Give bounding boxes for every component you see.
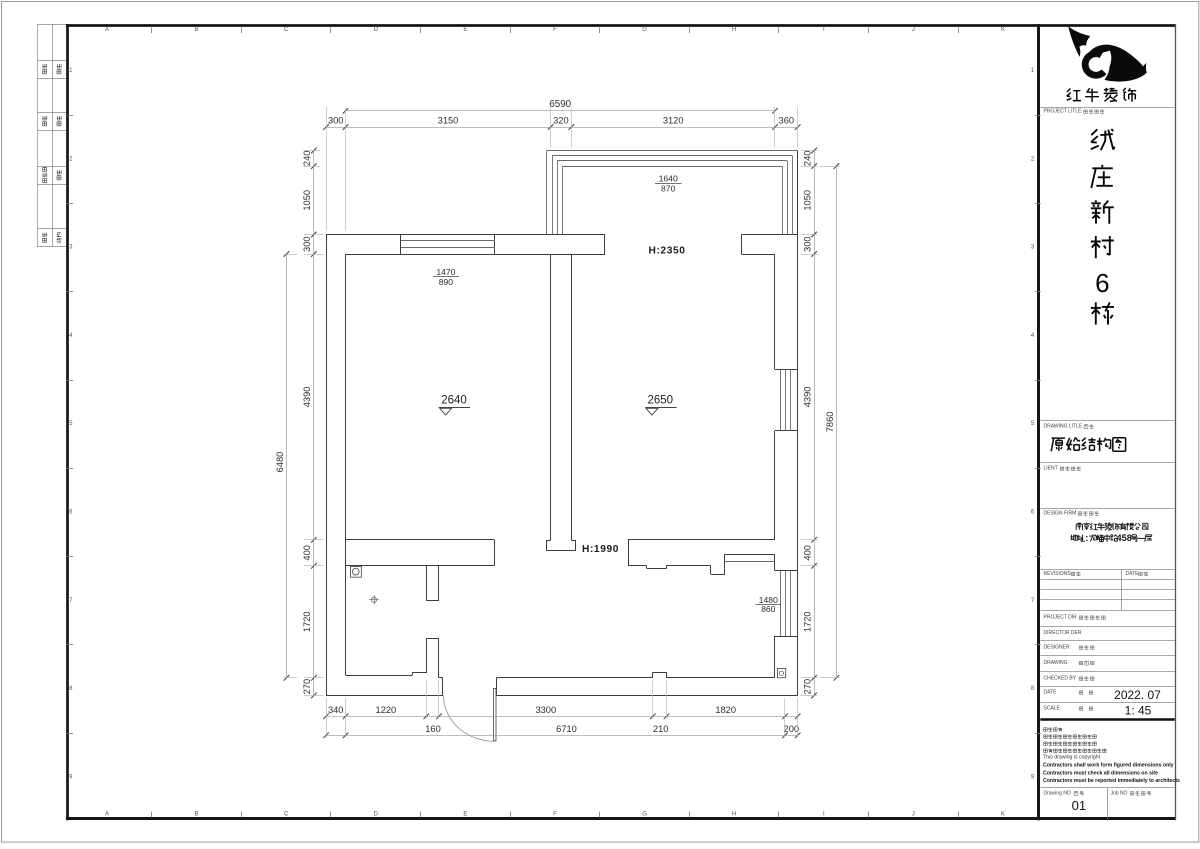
svg-text:870: 870 — [661, 183, 676, 193]
svg-text:G: G — [642, 811, 647, 817]
svg-text:300: 300 — [803, 236, 813, 252]
svg-text:Contractors must be reported i: Contractors must be reported immediately… — [1043, 778, 1180, 784]
svg-text:DATE: DATE — [1044, 690, 1058, 696]
svg-text:890: 890 — [439, 277, 454, 287]
svg-text::: : — [1085, 533, 1088, 543]
svg-text:270: 270 — [803, 679, 813, 695]
svg-text:240: 240 — [803, 151, 813, 167]
svg-text:DRAWING: DRAWING — [1044, 660, 1068, 666]
svg-text:C: C — [284, 811, 289, 817]
svg-text:1050: 1050 — [302, 190, 312, 211]
svg-text:CHECKED BY: CHECKED BY — [1044, 676, 1077, 682]
svg-text:270: 270 — [302, 679, 312, 695]
svg-text:Job NO: Job NO — [1111, 790, 1128, 796]
svg-text:160: 160 — [425, 724, 441, 734]
svg-text:K: K — [1001, 27, 1005, 33]
svg-text:H: H — [732, 811, 736, 817]
svg-text:3120: 3120 — [663, 116, 684, 126]
svg-text:320: 320 — [553, 116, 569, 126]
svg-text:7860: 7860 — [825, 412, 835, 433]
svg-text:300: 300 — [302, 236, 312, 252]
svg-text:1820: 1820 — [715, 705, 736, 715]
svg-text:D: D — [374, 27, 379, 33]
svg-text:458: 458 — [1117, 533, 1132, 543]
svg-text:400: 400 — [302, 545, 312, 561]
svg-text:B: B — [195, 811, 199, 817]
svg-text:400: 400 — [803, 545, 813, 561]
svg-text:H: H — [732, 27, 736, 33]
svg-text:DRAWING LITLE: DRAWING LITLE — [1044, 424, 1083, 430]
svg-text:300: 300 — [328, 116, 344, 126]
svg-text:6590: 6590 — [549, 99, 571, 110]
svg-text:C: C — [284, 27, 289, 33]
svg-text:DESIGN FIRM: DESIGN FIRM — [1044, 511, 1077, 517]
svg-text:J: J — [912, 27, 915, 33]
svg-text:6: 6 — [1095, 268, 1109, 298]
svg-text:340: 340 — [328, 705, 344, 715]
svg-text:B: B — [195, 27, 199, 33]
svg-text:1720: 1720 — [803, 611, 813, 632]
svg-text:Drawing NO: Drawing NO — [1044, 790, 1071, 796]
svg-text:2640: 2640 — [441, 394, 467, 406]
svg-text:240: 240 — [302, 151, 312, 167]
svg-text:1220: 1220 — [376, 705, 397, 715]
svg-text:A: A — [105, 27, 109, 33]
svg-text:4390: 4390 — [803, 387, 813, 408]
svg-text:J: J — [912, 811, 915, 817]
svg-text:1720: 1720 — [302, 611, 312, 632]
svg-text:Contractors must check all dim: Contractors must check all dimensions on… — [1043, 770, 1158, 776]
svg-text:6710: 6710 — [556, 724, 577, 734]
svg-text:4390: 4390 — [302, 387, 312, 408]
svg-text:200: 200 — [784, 724, 800, 734]
svg-text:DESIGNER: DESIGNER — [1044, 645, 1071, 651]
svg-text:860: 860 — [761, 604, 776, 614]
svg-text:6480: 6480 — [275, 452, 285, 473]
svg-text:360: 360 — [779, 116, 795, 126]
svg-text:D: D — [374, 811, 379, 817]
svg-text:E: E — [463, 811, 467, 817]
svg-text:SCALE: SCALE — [1044, 706, 1061, 712]
svg-text:PROJECT DIR: PROJECT DIR — [1044, 615, 1078, 621]
svg-text:01: 01 — [1072, 798, 1086, 813]
svg-text:1470: 1470 — [436, 267, 455, 277]
svg-text:PROJECT LITLE: PROJECT LITLE — [1044, 109, 1083, 115]
svg-text:H:1990: H:1990 — [582, 544, 619, 555]
svg-text:3300: 3300 — [535, 705, 556, 715]
svg-text:LIENT: LIENT — [1044, 466, 1058, 472]
svg-text:210: 210 — [653, 724, 669, 734]
svg-text:A: A — [105, 811, 109, 817]
svg-text:F: F — [553, 811, 557, 817]
svg-text:3150: 3150 — [438, 116, 459, 126]
svg-text:REVISIONS: REVISIONS — [1044, 571, 1072, 577]
svg-text:H:2350: H:2350 — [648, 246, 685, 257]
svg-text:2022. 07: 2022. 07 — [1114, 688, 1161, 702]
svg-text:2650: 2650 — [648, 394, 674, 406]
svg-text:1: 45: 1: 45 — [1125, 703, 1152, 717]
svg-text:1050: 1050 — [803, 190, 813, 211]
svg-text:1640: 1640 — [659, 174, 678, 184]
svg-text:F: F — [553, 27, 557, 33]
svg-text:Contractors shall work form fi: Contractors shall work form figured dime… — [1043, 763, 1174, 769]
svg-text:DATE: DATE — [1126, 571, 1140, 577]
svg-text:This drawing is copyright: This drawing is copyright — [1043, 755, 1101, 761]
svg-text:G: G — [642, 27, 647, 33]
svg-text:DIRECTOR DER: DIRECTOR DER — [1044, 630, 1082, 636]
svg-text:K: K — [1001, 811, 1005, 817]
svg-text:E: E — [463, 27, 467, 33]
